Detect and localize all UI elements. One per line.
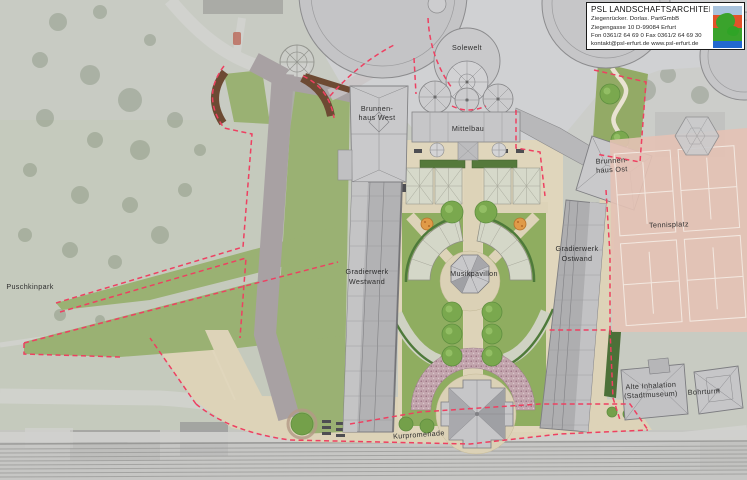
- label-brunnenhaus-west-2: haus West: [359, 113, 396, 122]
- label-bohrturm: Bohrturm: [687, 386, 720, 397]
- tennisplatz-area: [610, 128, 747, 332]
- firm-phone: Fon 0361/2 64 69 0 Fax 0361/2 64 69 30: [591, 33, 710, 39]
- label-brunnenhaus-ost-2: haus Ost: [596, 164, 628, 175]
- faded-parked-car: [233, 32, 241, 45]
- hedge-strip-east: [472, 160, 517, 168]
- firm-logo: [713, 6, 742, 48]
- hedge-strip-west: [420, 160, 465, 168]
- architect-title-block: PSL LANDSCHAFTSARCHITEKTEN Ziegenrücker.…: [586, 2, 745, 50]
- site-plan-canvas: Solewelt Brunnen- haus West Mittelbau Br…: [0, 0, 747, 480]
- firm-partners: Ziegenrücker. Dorlas. PartGmbB: [591, 16, 710, 22]
- label-brunnenhaus-west-1: Brunnen-: [361, 104, 394, 113]
- south-pavilion-building: [441, 380, 513, 448]
- label-gradierwerk-westwand-2: Westwand: [349, 277, 385, 286]
- label-gradierwerk-westwand-1: Gradierwerk: [346, 267, 389, 276]
- firm-name: PSL LANDSCHAFTSARCHITEKTEN: [591, 5, 710, 14]
- logo-green-blob-small: [727, 26, 739, 36]
- gradierwerk-westwand-building: [343, 182, 402, 432]
- label-tennisplatz: Tennisplatz: [649, 219, 689, 229]
- title-block-text: PSL LANDSCHAFTSARCHITEKTEN Ziegenrücker.…: [591, 5, 710, 47]
- label-mittelbau: Mittelbau: [452, 124, 484, 133]
- label-gradierwerk-ostwand-2: Ostwand: [562, 254, 593, 263]
- label-solewelt: Solewelt: [452, 43, 482, 52]
- site-plan-drawing: Solewelt Brunnen- haus West Mittelbau Br…: [0, 0, 747, 480]
- label-puschkinpark: Puschkinpark: [6, 282, 53, 291]
- logo-band-blue: [713, 41, 742, 48]
- label-musikpavillon: Musikpavillon: [450, 269, 498, 278]
- label-gradierwerk-ostwand-1: Gradierwerk: [556, 244, 599, 253]
- firm-contact: kontakt@psl-erfurt.de www.psl-erfurt.de: [591, 41, 710, 47]
- firm-address: Ziegengasse 10 D-99084 Erfurt: [591, 25, 710, 31]
